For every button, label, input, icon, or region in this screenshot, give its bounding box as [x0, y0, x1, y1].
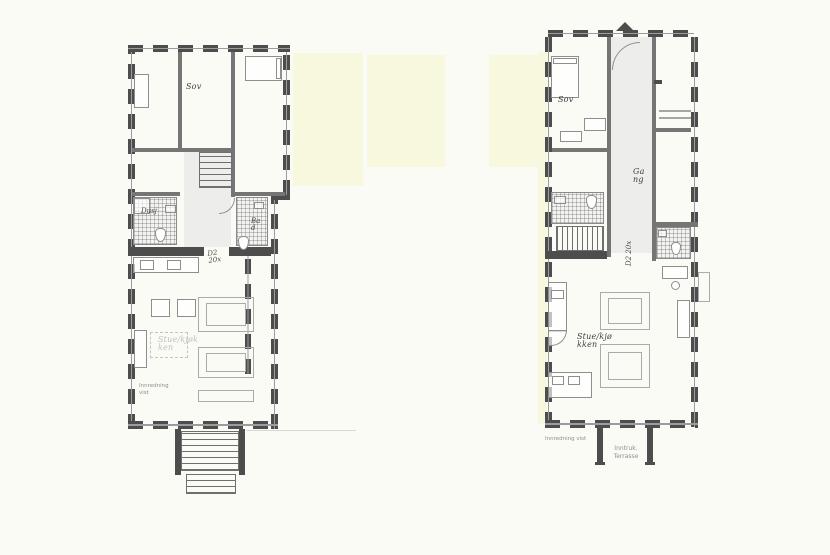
- floor-plan-canvas: Sov Dusj Bad Stue/kjøkken D2 20x Innredn…: [0, 0, 830, 555]
- sofa: [134, 330, 147, 368]
- railing: [659, 117, 691, 119]
- partition-wall: [132, 192, 180, 196]
- partition-wall: [552, 148, 607, 152]
- bed: [134, 74, 149, 108]
- door-tag-line2: 20x: [208, 255, 222, 265]
- armchair: [177, 299, 196, 317]
- sink-icon: [165, 205, 176, 213]
- railing: [659, 110, 691, 112]
- gable-marker: [616, 22, 634, 31]
- stove-icon: [568, 376, 580, 385]
- kitchen-sink-icon: [140, 260, 154, 270]
- desk: [662, 266, 688, 279]
- bed-pillow: [276, 58, 281, 79]
- room-label-bedroom: Sov: [186, 83, 201, 91]
- sink-icon: [658, 230, 667, 237]
- wall-segment: [283, 52, 290, 195]
- adjacent-unit-block: [367, 55, 445, 167]
- terrace-label-line1: Inntruk.: [614, 445, 637, 452]
- wall-segment: [691, 37, 698, 427]
- dividing-wall: [545, 251, 607, 259]
- terrace-label: Inntruk. Terrasse: [605, 445, 647, 460]
- entrance-stairs: [181, 431, 239, 471]
- table: [206, 353, 246, 372]
- sideboard: [198, 390, 254, 402]
- staircase: [199, 152, 232, 188]
- sink-icon: [254, 202, 264, 209]
- wall-segment: [128, 421, 278, 429]
- bed-pillow: [553, 58, 577, 64]
- sink-icon: [554, 196, 566, 204]
- room-label-bath: Bad: [251, 218, 264, 233]
- terrace-label-line2: Terrasse: [614, 453, 639, 460]
- door-arc: [219, 198, 235, 214]
- armchair: [151, 299, 170, 317]
- partition-wall: [178, 52, 182, 150]
- wall-segment: [548, 30, 694, 37]
- kitchen-corner-unit: [548, 330, 567, 346]
- adjacent-unit-block: [293, 53, 363, 186]
- stair-side-wall: [239, 429, 245, 475]
- room-label-living: Stue/kjøkken: [577, 333, 615, 350]
- kitchen-sink-icon: [551, 290, 564, 299]
- terrace-wall-foot: [595, 462, 605, 465]
- cabinet: [677, 300, 690, 338]
- partition-wall: [607, 37, 611, 257]
- room-label-living: Stue/kjøkken: [158, 336, 202, 353]
- balcony-stub: [698, 272, 710, 302]
- terrace-wall: [647, 428, 653, 464]
- wall-segment: [128, 45, 290, 52]
- dividing-wall: [128, 247, 204, 256]
- chair: [671, 281, 680, 290]
- table: [608, 352, 642, 380]
- dividing-wall: [229, 247, 271, 256]
- door-tag: D2 20x: [626, 241, 633, 266]
- plan-note: Innredning vist: [545, 436, 595, 443]
- partition-wall: [656, 128, 691, 132]
- ground-line: [246, 430, 356, 431]
- plan-note: Innredning vist: [139, 383, 179, 397]
- wall-segment: [271, 200, 278, 429]
- table: [608, 298, 642, 324]
- room-label-shower: Dusj: [141, 208, 157, 215]
- staircase: [556, 226, 604, 251]
- terrace-wall-foot: [645, 462, 655, 465]
- wall-segment: [545, 420, 698, 428]
- terrace-wall: [597, 428, 603, 464]
- wardrobe: [560, 131, 582, 142]
- partition-wall: [235, 192, 285, 196]
- door-leaf: [654, 80, 662, 84]
- entrance-stairs-lower: [186, 474, 236, 494]
- wardrobe: [584, 118, 606, 131]
- door-tag: D2 20x: [207, 249, 222, 265]
- table: [206, 303, 246, 326]
- room-label-bedroom: Sov: [558, 96, 573, 104]
- room-label-hall: Gang: [633, 168, 649, 185]
- adjacent-unit-block: [489, 55, 541, 167]
- stove-icon: [167, 260, 181, 270]
- stove-icon: [552, 376, 564, 385]
